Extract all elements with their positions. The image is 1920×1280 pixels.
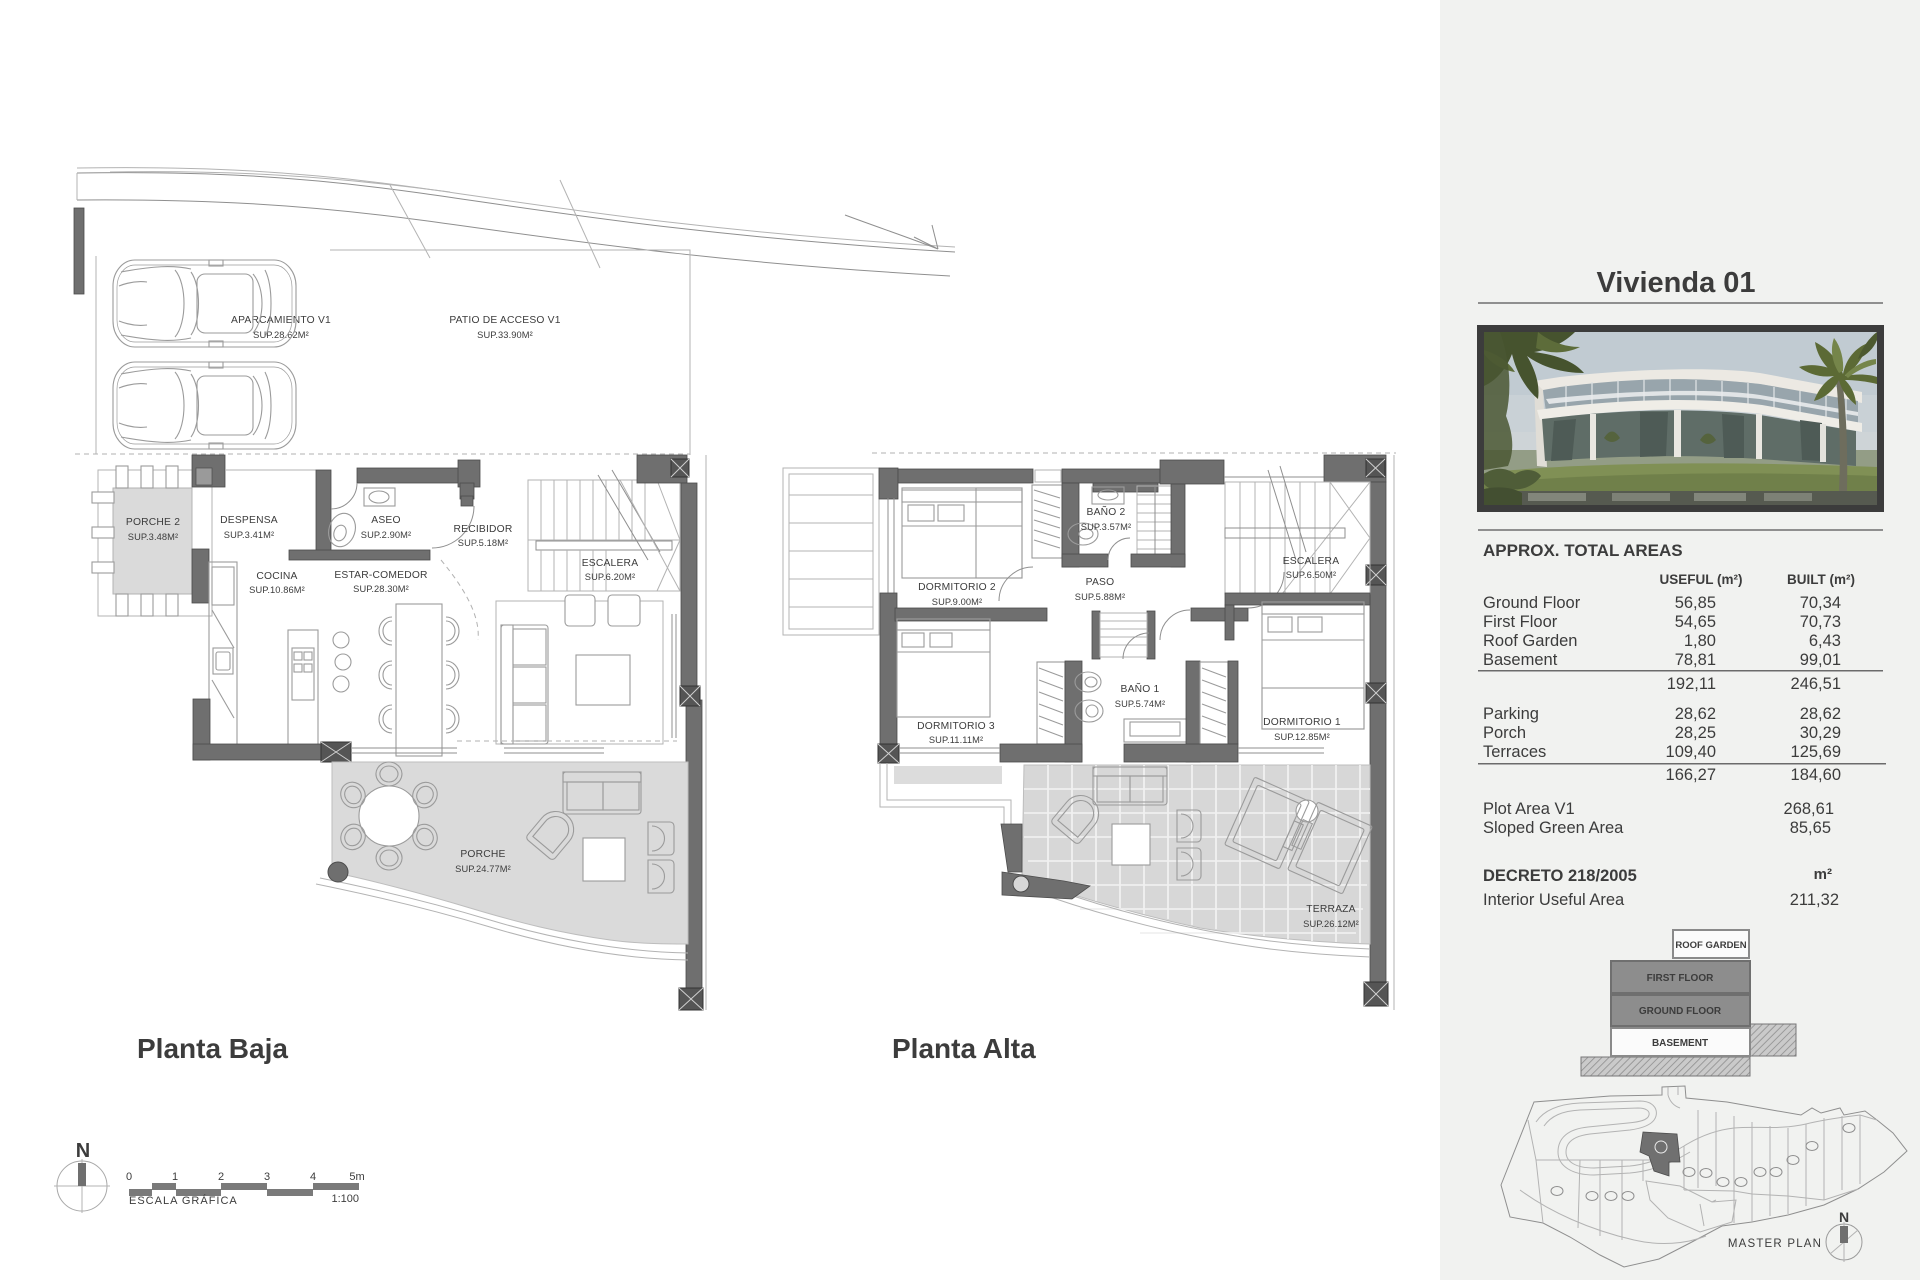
svg-text:2: 2 [218,1171,224,1183]
svg-text:Roof Garden: Roof Garden [1483,632,1577,650]
svg-text:1:100: 1:100 [331,1193,359,1205]
svg-text:FIRST FLOOR: FIRST FLOOR [1647,973,1714,984]
svg-text:Vivienda 01: Vivienda 01 [1596,267,1755,299]
svg-text:Terraces: Terraces [1483,743,1546,761]
svg-text:28,62: 28,62 [1675,705,1716,723]
svg-text:56,85: 56,85 [1675,594,1716,612]
svg-text:SUP.2.90M²: SUP.2.90M² [361,530,411,540]
svg-text:USEFUL (m²): USEFUL (m²) [1660,572,1743,587]
svg-text:Parking: Parking [1483,705,1539,723]
svg-text:DORMITORIO 3: DORMITORIO 3 [917,721,995,732]
svg-text:28,25: 28,25 [1675,724,1716,742]
svg-text:ESTAR-COMEDOR: ESTAR-COMEDOR [334,570,427,581]
svg-text:PORCHE 2: PORCHE 2 [126,517,180,528]
svg-text:ESCALERA: ESCALERA [582,558,639,569]
svg-text:SUP.6.50M²: SUP.6.50M² [1286,570,1336,580]
svg-text:SUP.12.85M²: SUP.12.85M² [1274,732,1330,742]
svg-text:Ground Floor: Ground Floor [1483,594,1581,612]
svg-text:SUP.3.48M²: SUP.3.48M² [128,532,178,542]
svg-text:SUP.11.11M²: SUP.11.11M² [929,735,983,745]
svg-text:SUP.5.88M²: SUP.5.88M² [1075,592,1125,602]
svg-text:APARCAMIENTO V1: APARCAMIENTO V1 [231,315,331,326]
svg-text:109,40: 109,40 [1666,743,1716,761]
svg-text:m²: m² [1814,866,1832,883]
svg-text:N: N [76,1140,90,1162]
svg-text:SUP.3.57M²: SUP.3.57M² [1081,522,1131,532]
svg-text:78,81: 78,81 [1675,651,1716,669]
svg-text:Plot Area V1: Plot Area V1 [1483,800,1575,818]
svg-text:211,32: 211,32 [1790,891,1839,909]
svg-text:COCINA: COCINA [256,571,297,582]
svg-text:SUP.9.00M²: SUP.9.00M² [932,597,982,607]
svg-text:Planta Baja: Planta Baja [137,1033,288,1064]
svg-text:ASEO: ASEO [371,515,400,526]
svg-text:85,65: 85,65 [1790,819,1831,837]
svg-text:SUP.3.41M²: SUP.3.41M² [224,530,274,540]
svg-text:DORMITORIO 2: DORMITORIO 2 [918,582,996,593]
svg-text:Basement: Basement [1483,651,1558,669]
svg-text:ESCALERA: ESCALERA [1283,556,1340,567]
svg-text:APPROX. TOTAL AREAS: APPROX. TOTAL AREAS [1483,541,1683,560]
svg-text:246,51: 246,51 [1791,675,1841,693]
svg-text:Sloped Green Area: Sloped Green Area [1483,819,1624,837]
svg-text:3: 3 [264,1171,270,1183]
svg-text:192,11: 192,11 [1667,675,1716,693]
svg-text:125,69: 125,69 [1791,743,1841,761]
svg-text:SUP.33.90M²: SUP.33.90M² [477,330,533,340]
svg-text:BASEMENT: BASEMENT [1652,1038,1708,1049]
svg-text:First Floor: First Floor [1483,613,1558,631]
svg-text:PATIO DE ACCESO V1: PATIO DE ACCESO V1 [449,315,560,326]
svg-text:SUP.24.77M²: SUP.24.77M² [455,864,511,874]
svg-text:268,61: 268,61 [1784,800,1834,818]
svg-text:SUP.28.30M²: SUP.28.30M² [353,584,409,594]
svg-text:70,73: 70,73 [1800,613,1841,631]
svg-text:DESPENSA: DESPENSA [220,515,278,526]
svg-text:30,29: 30,29 [1800,724,1841,742]
svg-text:5m: 5m [349,1171,364,1183]
svg-text:SUP.10.86M²: SUP.10.86M² [249,585,305,595]
svg-text:BAÑO 1: BAÑO 1 [1121,682,1160,695]
svg-text:6,43: 6,43 [1809,632,1841,650]
svg-text:166,27: 166,27 [1666,766,1716,784]
svg-text:54,65: 54,65 [1675,613,1716,631]
svg-text:DORMITORIO 1: DORMITORIO 1 [1263,717,1341,728]
svg-text:PASO: PASO [1086,577,1115,588]
svg-text:Interior Useful Area: Interior Useful Area [1483,891,1625,909]
svg-text:99,01: 99,01 [1800,651,1841,669]
svg-text:MASTER PLAN: MASTER PLAN [1728,1238,1822,1250]
svg-text:PORCHE: PORCHE [460,849,505,860]
svg-text:SUP.28.62M²: SUP.28.62M² [253,330,309,340]
svg-text:ESCALA GRÁFICA: ESCALA GRÁFICA [129,1194,238,1207]
svg-text:Planta Alta: Planta Alta [892,1033,1036,1064]
svg-text:ROOF GARDEN: ROOF GARDEN [1675,940,1746,951]
svg-text:28,62: 28,62 [1800,705,1841,723]
svg-text:BUILT (m²): BUILT (m²) [1787,572,1855,587]
svg-text:0: 0 [126,1171,132,1183]
svg-text:SUP.5.18M²: SUP.5.18M² [458,538,508,548]
svg-text:DECRETO 218/2005: DECRETO 218/2005 [1483,867,1637,885]
svg-text:1,80: 1,80 [1684,632,1716,650]
svg-text:184,60: 184,60 [1791,766,1841,784]
svg-text:TERRAZA: TERRAZA [1306,904,1355,915]
svg-text:SUP.5.74M²: SUP.5.74M² [1115,699,1165,709]
svg-text:SUP.26.12M²: SUP.26.12M² [1303,919,1359,929]
svg-text:SUP.6.20M²: SUP.6.20M² [585,572,635,582]
svg-text:4: 4 [310,1171,316,1183]
svg-text:1: 1 [172,1171,178,1183]
svg-text:70,34: 70,34 [1800,594,1841,612]
svg-text:RECIBIDOR: RECIBIDOR [453,524,512,535]
svg-text:GROUND FLOOR: GROUND FLOOR [1639,1006,1722,1017]
svg-text:BAÑO 2: BAÑO 2 [1087,505,1126,518]
svg-text:Porch: Porch [1483,724,1526,742]
